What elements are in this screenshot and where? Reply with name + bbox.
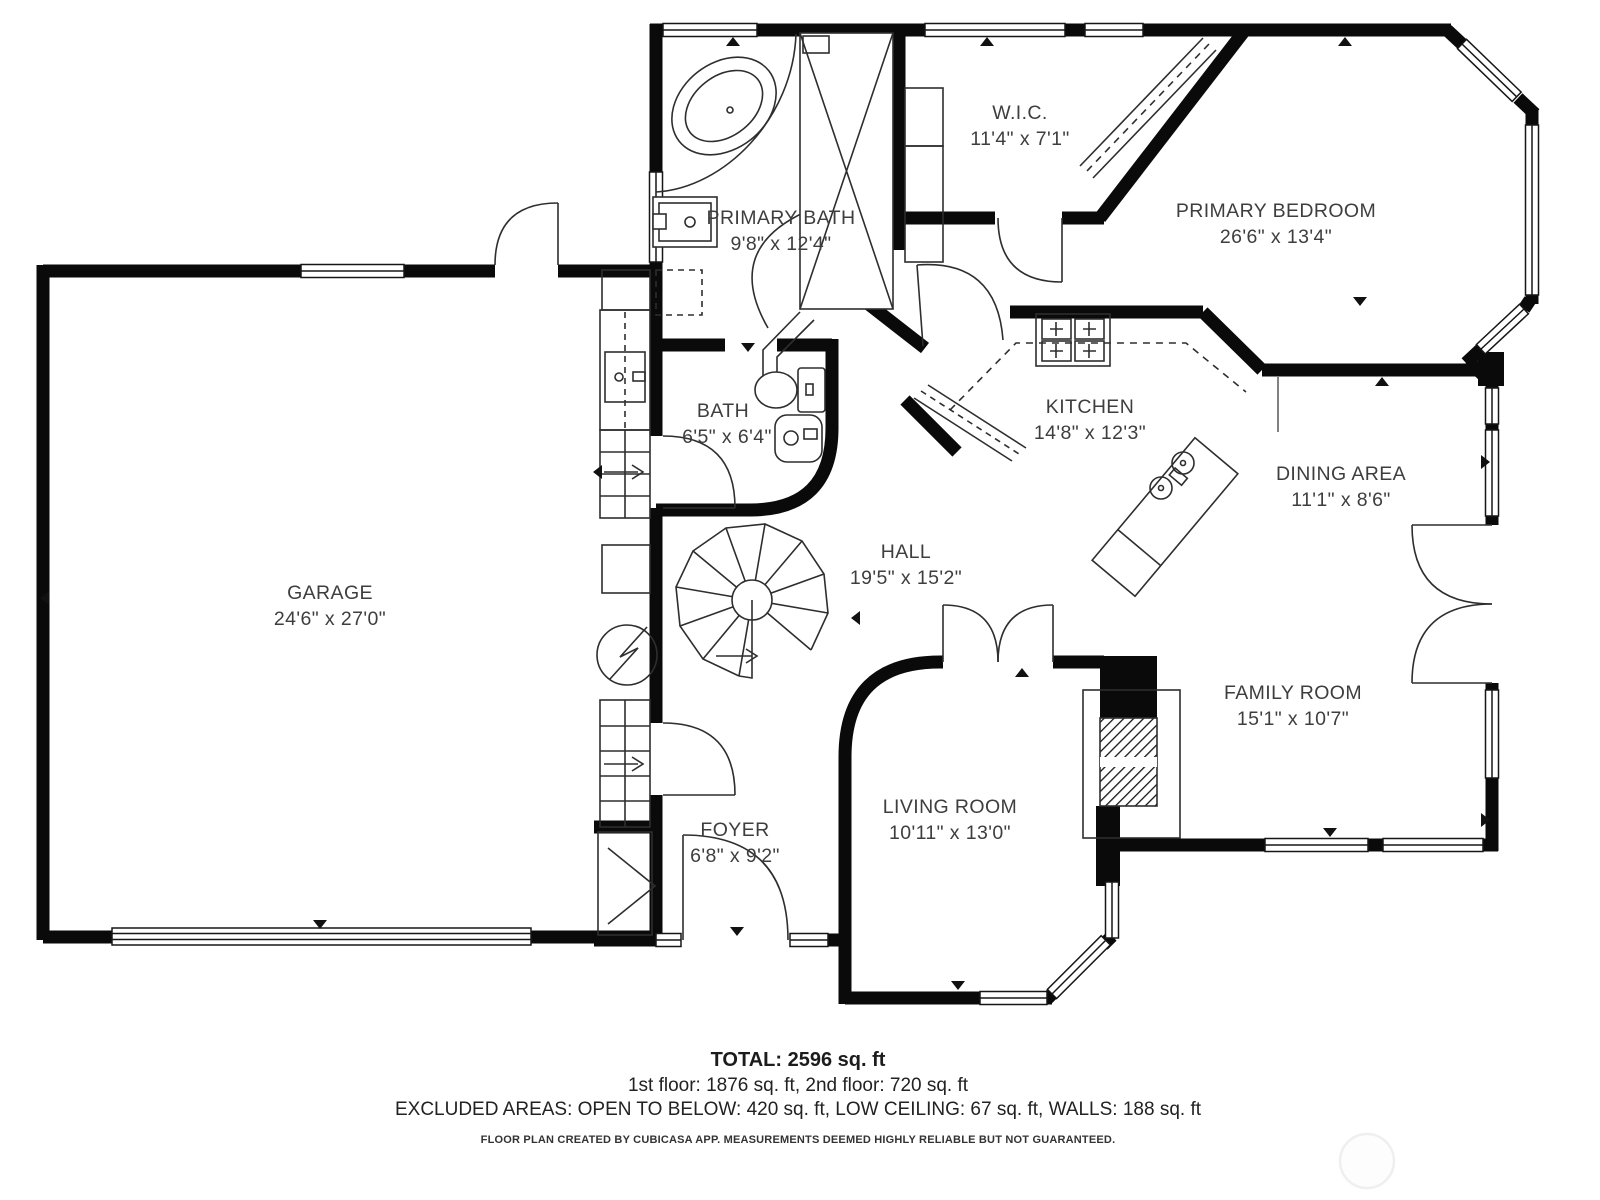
total-area-text: TOTAL: 2596 sq. ft (711, 1049, 886, 1071)
room-label-dining-area: DINING AREA (1276, 463, 1406, 485)
door-primary-bedroom (917, 265, 1003, 346)
window (925, 24, 1065, 37)
room-label-family-room: FAMILY ROOM (1224, 682, 1362, 704)
room-dims-wic: 11'4" x 7'1" (970, 128, 1069, 150)
stairs-icon (600, 430, 650, 518)
room-label-hall: HALL (881, 541, 931, 563)
walls-layer (43, 24, 1535, 1004)
room-dims-kitchen: 14'8" x 12'3" (1034, 422, 1146, 444)
window (1106, 882, 1119, 938)
window (1526, 125, 1539, 295)
window (1486, 430, 1499, 516)
room-label-living-room: LIVING ROOM (883, 796, 1017, 818)
window (663, 24, 757, 37)
window (1265, 839, 1368, 852)
window (1085, 24, 1143, 37)
creator-note-text: FLOOR PLAN CREATED BY CUBICASA APP. MEAS… (481, 1134, 1116, 1146)
floorplan-page: GARAGE 24'6" x 27'0" PRIMARY BATH 9'8" x… (0, 0, 1600, 1200)
utility-symbol-icon (597, 625, 657, 685)
sink-icon (775, 415, 822, 462)
toilet-icon (755, 368, 825, 412)
room-dims-primary-bedroom: 26'6" x 13'4" (1220, 226, 1332, 248)
window (1486, 690, 1499, 778)
room-dims-garage: 24'6" x 27'0" (274, 608, 386, 630)
door-wic (998, 218, 1062, 282)
laundry-sink-icon (600, 310, 650, 430)
footer-summary: TOTAL: 2596 sq. ft 1st floor: 1876 sq. f… (395, 1049, 1202, 1146)
room-dims-living-room: 10'11" x 13'0" (889, 822, 1011, 844)
cabinet-icon (656, 270, 702, 315)
room-dims-hall: 19'5" x 15'2" (850, 567, 962, 589)
room-label-kitchen: KITCHEN (1046, 396, 1134, 418)
floor-plan-svg: GARAGE 24'6" x 27'0" PRIMARY BATH 9'8" x… (0, 0, 1600, 1200)
window (1047, 936, 1110, 999)
room-label-bath: BATH (697, 400, 749, 422)
room-dims-dining-area: 11'1" x 8'6" (1291, 489, 1390, 511)
french-door-family (1412, 525, 1492, 683)
watermark-circle (1340, 1134, 1394, 1188)
room-label-garage: GARAGE (287, 582, 373, 604)
room-dims-foyer: 6'8" x 9'2" (690, 845, 780, 867)
stove-icon (1036, 314, 1110, 366)
room-label-foyer: FOYER (700, 819, 769, 841)
window (1476, 304, 1528, 354)
double-door-living (943, 605, 1053, 662)
garage-door (112, 928, 531, 945)
closet-icon (598, 832, 655, 935)
window (980, 992, 1047, 1005)
excluded-areas-text: EXCLUDED AREAS: OPEN TO BELOW: 420 sq. f… (395, 1099, 1202, 1120)
stairs-icon (600, 700, 650, 827)
window (790, 934, 828, 947)
window (656, 934, 681, 947)
room-label-primary-bath: PRIMARY BATH (707, 207, 856, 229)
window (301, 265, 404, 278)
window (1486, 388, 1499, 424)
room-dims-primary-bath: 9'8" x 12'4" (731, 233, 832, 255)
door-mud (663, 723, 735, 795)
stair-landing (602, 545, 650, 593)
spiral-stairs-icon (676, 524, 828, 678)
floor-areas-text: 1st floor: 1876 sq. ft, 2nd floor: 720 s… (628, 1075, 969, 1096)
shelf (905, 146, 943, 262)
room-label-primary-bedroom: PRIMARY BEDROOM (1176, 200, 1376, 222)
room-dims-family-room: 15'1" x 10'7" (1237, 708, 1349, 730)
kitchen-island-icon (1092, 438, 1238, 597)
bathtub-icon (653, 34, 796, 192)
room-label-wic: W.I.C. (992, 102, 1047, 124)
door-garage-rear (495, 203, 558, 265)
room-dims-bath: 6'5" x 6'4" (682, 426, 772, 448)
window (1383, 839, 1483, 852)
window (1457, 39, 1521, 101)
shelf (905, 88, 943, 146)
